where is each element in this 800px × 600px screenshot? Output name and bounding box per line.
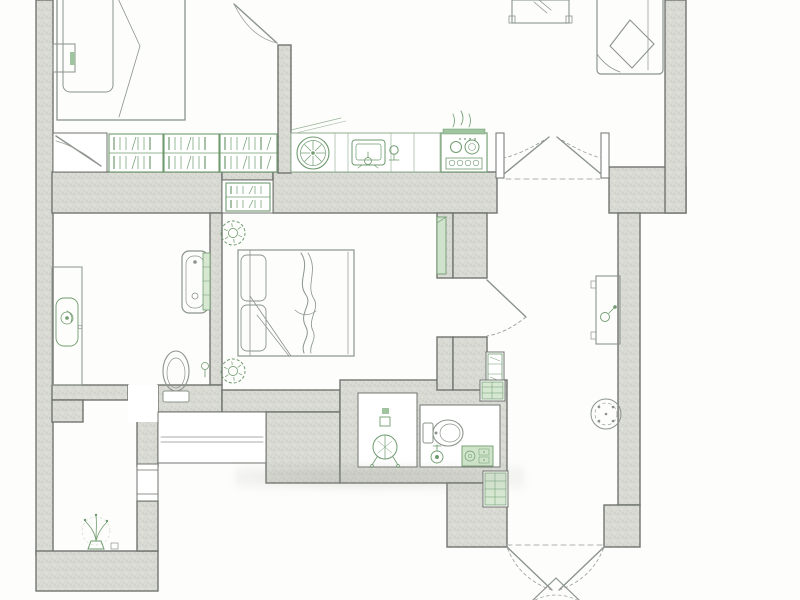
wall-service-left	[266, 412, 340, 483]
bathroom-door-gap	[128, 385, 158, 422]
entry-doors	[507, 545, 604, 600]
vanity-bathroom	[52, 267, 82, 385]
toilet-bathroom	[163, 351, 189, 402]
desk-hallway	[591, 276, 620, 344]
wall-right-outer-mid	[618, 213, 640, 505]
wall-bathroom-bedroom-divider	[210, 213, 222, 385]
bookshelf-row-1	[109, 134, 163, 172]
bed-bedroom-a	[57, 0, 185, 120]
wall-bedroom-a-kitchen-divider	[278, 45, 291, 173]
french-door-post-left	[496, 133, 504, 178]
room-boiler	[358, 393, 417, 467]
cabinet-wc	[462, 446, 493, 466]
wall-bedroom-mid-right-lower	[437, 337, 453, 390]
walls-layer	[36, 0, 686, 591]
door-bedroom-a-to-kitchen	[234, 4, 277, 43]
wall-right-outer-top	[665, 0, 686, 213]
wall-bathroom-bottom-left	[52, 385, 128, 400]
door-bedroom-mid-to-hall	[487, 280, 526, 336]
french-door-post-right	[601, 133, 609, 178]
bookshelf-row-3	[220, 134, 277, 172]
bed-bedroom-mid	[238, 250, 354, 356]
round-unit-hallway	[591, 399, 621, 429]
bookshelf-niche	[226, 183, 270, 211]
door-bedroom-a	[53, 133, 107, 172]
towel-rail-bathroom	[203, 253, 210, 310]
shelf-niche-top	[480, 380, 505, 401]
nightstand-bedroom-a	[53, 44, 75, 72]
wall-kitchen-bottom	[273, 172, 497, 213]
window-storage	[137, 464, 158, 501]
bed-bedroom-b	[597, 0, 663, 74]
desk-bedroom-b	[509, 0, 572, 23]
wall-storage-top	[52, 400, 83, 422]
bookshelf-row-2	[164, 134, 219, 172]
floor-plan	[0, 0, 800, 600]
washing-machine-kitchen	[297, 137, 329, 169]
closet-corridor	[158, 412, 266, 463]
stove-kitchen	[441, 111, 487, 172]
wall-corridor-stub-upper	[453, 213, 487, 278]
wall-left-outer	[36, 0, 53, 555]
wall-niche-top	[222, 172, 273, 180]
wall-right-outer-step	[604, 505, 640, 547]
shelf-niche-bottom	[483, 471, 508, 507]
toilet-brush-icon	[202, 363, 209, 378]
plant-bedroom-mid-bottom	[221, 359, 245, 383]
wall-bedroom-a-bottom	[52, 172, 222, 213]
french-doors	[504, 137, 601, 179]
mirror-board-hall	[437, 217, 446, 274]
floor-plan-page	[0, 0, 800, 600]
wall-storage-right-lower	[137, 501, 158, 551]
wall-bedroom-mid-bottom	[222, 390, 340, 412]
plant-bedroom-mid-top	[221, 221, 245, 245]
plant-storage	[82, 514, 118, 549]
wall-bottom-left	[36, 551, 158, 591]
